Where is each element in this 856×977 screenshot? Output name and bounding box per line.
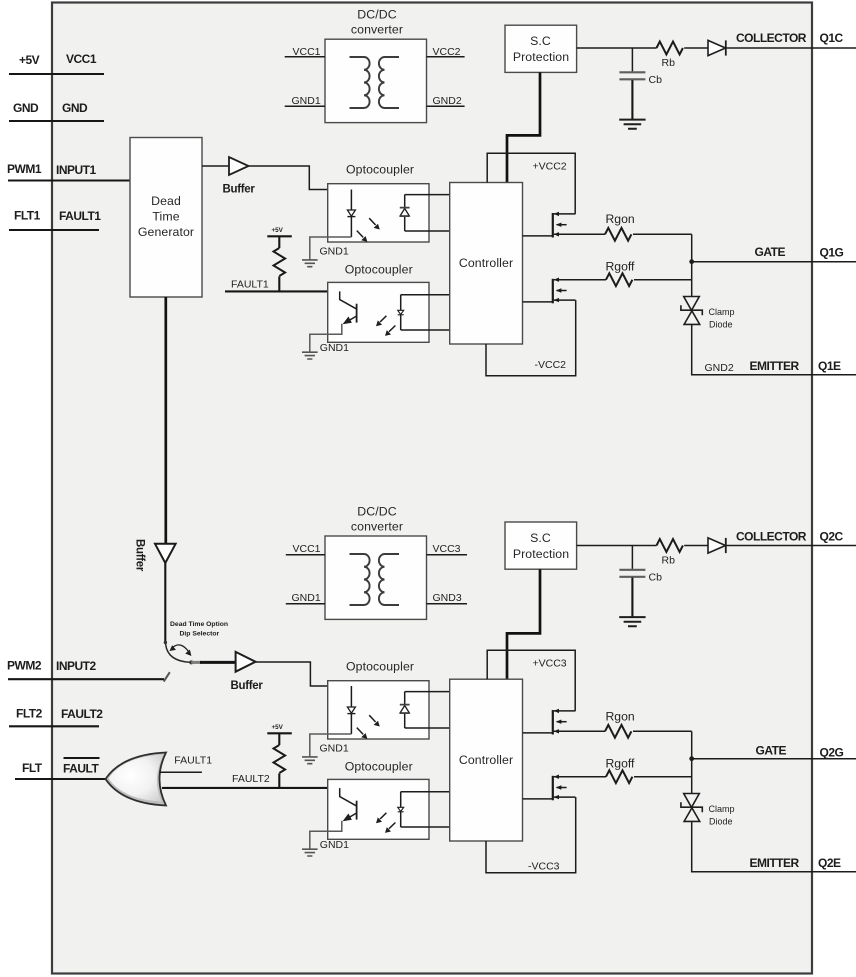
svg-text:FAULT2: FAULT2 [232,773,270,785]
svg-text:VCC1: VCC1 [66,52,97,66]
svg-text:FAULT1: FAULT1 [174,755,212,767]
svg-text:PWM1: PWM1 [7,162,42,176]
svg-text:COLLECTOR: COLLECTOR [736,31,807,45]
svg-text:Rgon: Rgon [606,212,635,226]
svg-text:Q2G: Q2G [820,746,844,760]
svg-text:VCC1: VCC1 [293,543,321,555]
svg-text:converter: converter [351,520,403,534]
svg-text:GND: GND [62,101,88,115]
svg-text:Protection: Protection [513,50,569,64]
svg-text:Controller: Controller [459,256,513,270]
svg-text:FLT1: FLT1 [14,209,41,223]
svg-text:FLT2: FLT2 [16,707,43,721]
svg-text:Optocoupler: Optocoupler [346,660,414,674]
svg-text:+VCC3: +VCC3 [533,658,567,670]
svg-text:GND3: GND3 [433,592,462,604]
svg-text:COLLECTOR: COLLECTOR [736,530,807,544]
svg-text:FAULT2: FAULT2 [61,707,103,721]
svg-text:EMITTER: EMITTER [750,856,800,870]
svg-text:-VCC2: -VCC2 [535,359,567,371]
svg-text:FAULT: FAULT [63,762,99,776]
svg-text:Cb: Cb [649,74,663,86]
svg-text:Diode: Diode [709,817,733,827]
svg-text:Cb: Cb [649,572,663,584]
svg-text:FLT: FLT [22,761,43,775]
svg-text:Buffer: Buffer [223,184,256,196]
svg-text:+5V: +5V [272,227,284,234]
svg-text:GND1: GND1 [292,592,321,604]
svg-text:Rgoff: Rgoff [606,757,636,771]
svg-text:GND1: GND1 [320,246,349,258]
svg-text:Dead: Dead [151,194,181,208]
svg-text:+5V: +5V [272,724,284,731]
svg-text:GND1: GND1 [292,95,321,107]
svg-text:DC/DC: DC/DC [357,8,396,22]
svg-text:GND1: GND1 [320,839,349,851]
svg-text:Q2E: Q2E [818,856,841,870]
svg-text:Rb: Rb [662,57,676,69]
svg-text:FAULT1: FAULT1 [231,279,269,291]
svg-text:Buffer: Buffer [231,680,264,692]
svg-text:+VCC2: +VCC2 [533,161,567,173]
svg-text:Optocoupler: Optocoupler [345,760,413,774]
svg-text:Controller: Controller [459,753,513,767]
svg-text:Buffer: Buffer [134,539,146,572]
svg-text:+5V: +5V [19,53,40,67]
svg-text:GND2: GND2 [705,362,734,374]
svg-text:Optocoupler: Optocoupler [345,263,413,277]
svg-text:GATE: GATE [755,245,786,259]
svg-text:GND1: GND1 [320,342,349,354]
svg-text:converter: converter [351,23,403,37]
svg-text:S.C: S.C [530,34,551,48]
svg-text:Protection: Protection [513,547,569,561]
svg-text:Generator: Generator [138,225,194,239]
svg-text:Rgoff: Rgoff [606,260,636,274]
svg-text:-VCC3: -VCC3 [528,861,560,873]
svg-text:Time: Time [152,210,179,224]
svg-text:Clamp: Clamp [709,804,735,814]
svg-text:Optocoupler: Optocoupler [346,163,414,177]
svg-text:GND2: GND2 [433,95,462,107]
svg-text:EMITTER: EMITTER [750,359,800,373]
svg-text:Dead Time Option: Dead Time Option [170,621,228,628]
svg-text:Diode: Diode [709,320,733,330]
svg-text:GATE: GATE [756,744,787,758]
svg-text:VCC3: VCC3 [433,543,461,555]
svg-text:Clamp: Clamp [709,307,735,317]
svg-text:Rgon: Rgon [606,709,635,723]
svg-text:GND: GND [13,101,39,115]
svg-text:FAULT1: FAULT1 [59,209,101,223]
svg-text:S.C: S.C [530,531,551,545]
svg-text:INPUT2: INPUT2 [56,659,97,673]
svg-text:Q1C: Q1C [820,31,844,45]
svg-text:Q1E: Q1E [818,359,841,373]
svg-text:Q2C: Q2C [820,530,844,544]
svg-text:Q1G: Q1G [820,246,844,260]
svg-text:Rb: Rb [662,555,676,567]
svg-text:INPUT1: INPUT1 [56,163,97,177]
svg-text:Dip Selector: Dip Selector [180,631,220,638]
svg-text:DC/DC: DC/DC [357,505,396,519]
svg-text:PWM2: PWM2 [7,659,42,673]
svg-text:GND1: GND1 [320,743,349,755]
